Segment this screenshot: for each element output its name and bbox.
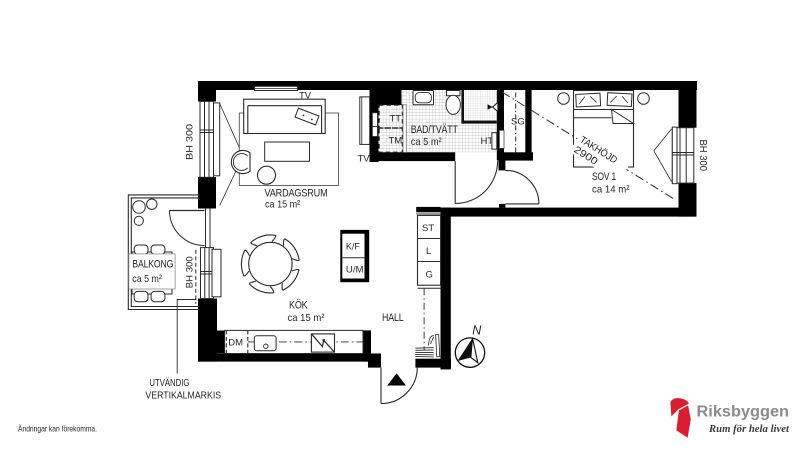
svg-text:ST: ST	[422, 223, 434, 234]
svg-text:ca 5 m²: ca 5 m²	[132, 273, 162, 285]
svg-text:ca 15 m²: ca 15 m²	[265, 199, 301, 211]
svg-text:BALKONG: BALKONG	[132, 258, 173, 270]
svg-text:KÖK: KÖK	[289, 300, 308, 312]
svg-text:TT: TT	[390, 113, 402, 124]
svg-text:N: N	[472, 324, 482, 338]
svg-text:ca 5 m²: ca 5 m²	[411, 136, 442, 148]
svg-text:DM: DM	[228, 337, 243, 348]
svg-text:Rum för hela livet: Rum för hela livet	[708, 423, 790, 435]
svg-text:L: L	[426, 246, 431, 257]
svg-text:K/F: K/F	[346, 242, 360, 253]
svg-text:Ändringar kan förekomma.: Ändringar kan förekomma.	[18, 424, 97, 434]
svg-text:BH 300: BH 300	[185, 256, 196, 288]
svg-text:SOV 1: SOV 1	[592, 171, 616, 183]
svg-text:SG: SG	[511, 117, 525, 128]
svg-text:G: G	[426, 270, 433, 281]
svg-text:VERTIKALMARKIS: VERTIKALMARKIS	[145, 390, 221, 402]
svg-text:TV: TV	[358, 154, 371, 165]
svg-text:HALL: HALL	[382, 312, 404, 324]
svg-text:BAD/TVÄTT: BAD/TVÄTT	[411, 124, 458, 136]
svg-text:BH 300: BH 300	[697, 140, 709, 172]
svg-text:Riksbyggen: Riksbyggen	[697, 404, 790, 421]
svg-text:UTVÄNDIG: UTVÄNDIG	[149, 377, 189, 389]
svg-text:BH 300: BH 300	[185, 124, 196, 160]
svg-text:ca 15 m²: ca 15 m²	[288, 312, 325, 324]
svg-text:TV: TV	[299, 91, 312, 102]
svg-text:VARDAGSRUM: VARDAGSRUM	[265, 187, 328, 199]
svg-text:ca 14 m²: ca 14 m²	[592, 184, 630, 196]
svg-text:U/M: U/M	[346, 264, 364, 275]
svg-text:TM: TM	[389, 135, 403, 146]
